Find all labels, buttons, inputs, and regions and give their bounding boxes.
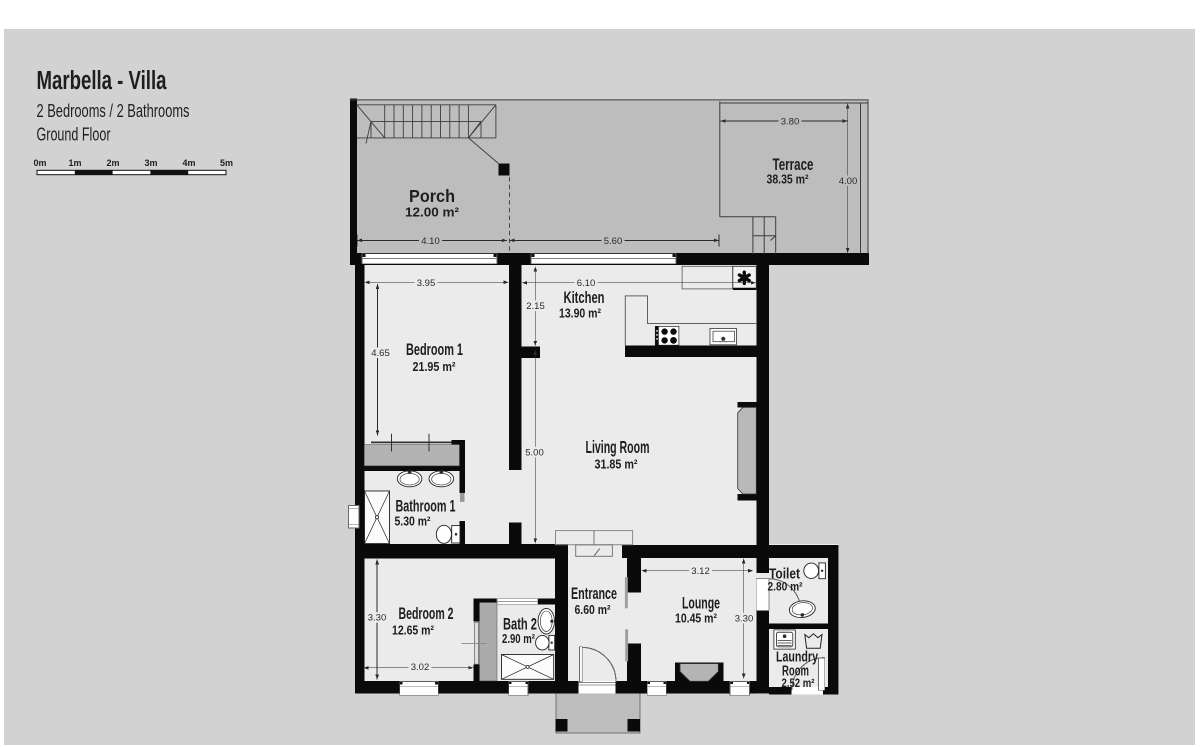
svg-text:5.00: 5.00 <box>525 447 544 458</box>
svg-text:Bedroom 2: Bedroom 2 <box>399 604 454 623</box>
svg-text:4.10: 4.10 <box>421 236 440 247</box>
svg-text:2.52 m²: 2.52 m² <box>782 677 815 690</box>
svg-text:1m: 1m <box>68 158 81 168</box>
svg-text:5m: 5m <box>220 158 233 168</box>
svg-text:2.15: 2.15 <box>526 301 545 312</box>
svg-text:Kitchen: Kitchen <box>564 288 605 307</box>
svg-text:3.02: 3.02 <box>411 662 430 673</box>
svg-text:5.30 m²: 5.30 m² <box>395 514 431 529</box>
svg-text:3.30: 3.30 <box>368 613 387 624</box>
svg-text:6.60 m²: 6.60 m² <box>575 602 611 617</box>
svg-text:4.00: 4.00 <box>839 176 858 187</box>
svg-text:3.12: 3.12 <box>691 566 710 577</box>
svg-text:2 Bedrooms / 2 Bathrooms: 2 Bedrooms / 2 Bathrooms <box>37 100 190 121</box>
svg-text:0m: 0m <box>33 158 46 168</box>
svg-text:12.65 m²: 12.65 m² <box>392 623 434 638</box>
svg-text:Marbella - Villa: Marbella - Villa <box>37 67 168 95</box>
svg-text:4.65: 4.65 <box>371 348 390 359</box>
svg-text:Entrance: Entrance <box>571 585 617 603</box>
svg-text:Porch: Porch <box>409 186 455 206</box>
svg-text:13.90 m²: 13.90 m² <box>559 306 601 321</box>
svg-text:2.80 m²: 2.80 m² <box>768 580 803 594</box>
svg-text:12.00 m²: 12.00 m² <box>405 205 460 220</box>
svg-text:Bedroom 1: Bedroom 1 <box>406 340 463 359</box>
svg-text:10.45 m²: 10.45 m² <box>675 611 717 626</box>
svg-text:2m: 2m <box>106 158 119 168</box>
svg-text:31.85 m²: 31.85 m² <box>595 457 638 472</box>
svg-text:4m: 4m <box>182 158 195 168</box>
svg-text:Ground Floor: Ground Floor <box>37 124 111 145</box>
svg-text:Living Room: Living Room <box>586 437 650 457</box>
svg-text:21.95 m²: 21.95 m² <box>413 359 456 374</box>
svg-text:5.60: 5.60 <box>604 236 623 247</box>
svg-text:3.30: 3.30 <box>735 613 754 624</box>
svg-text:3.95: 3.95 <box>417 278 436 289</box>
svg-text:Bath 2: Bath 2 <box>503 616 537 634</box>
svg-text:3m: 3m <box>144 158 157 168</box>
svg-text:2.90 m²: 2.90 m² <box>502 632 535 646</box>
svg-text:3.80: 3.80 <box>781 116 800 127</box>
svg-text:38.35 m²: 38.35 m² <box>767 172 809 187</box>
